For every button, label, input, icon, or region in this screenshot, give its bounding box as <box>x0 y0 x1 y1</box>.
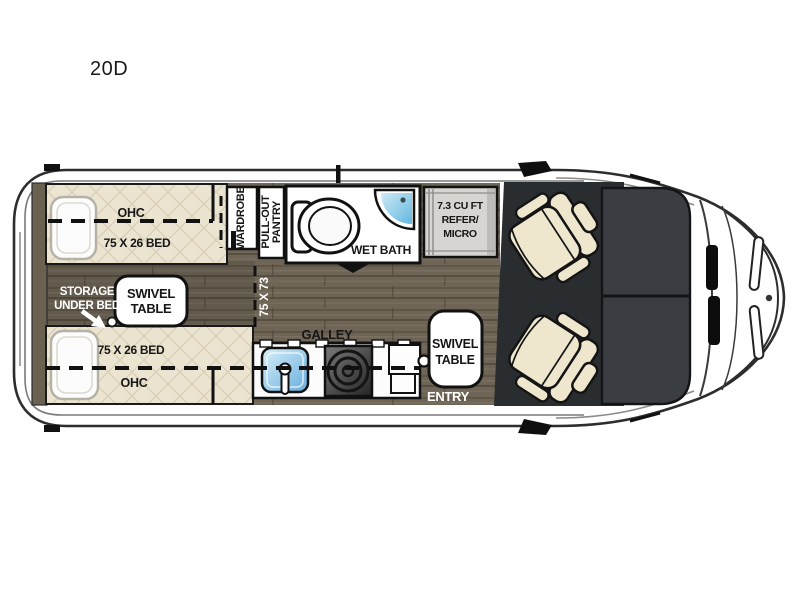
label-galley: GALLEY <box>302 327 354 342</box>
grille-bar-lower <box>708 296 720 345</box>
stove-icon <box>325 346 372 396</box>
bed-top <box>46 184 227 264</box>
grille-bar-upper <box>706 245 718 290</box>
rear-cabinet <box>32 183 47 405</box>
label-swivel-front-line2: TABLE <box>435 353 474 367</box>
counter-end-lower <box>391 374 415 393</box>
door-hinge-bottom <box>44 425 60 432</box>
label-pantry-line2: PANTRY <box>271 200 283 243</box>
label-wardrobe: WARDROBE <box>235 187 247 250</box>
sink-icon <box>262 348 308 394</box>
label-swivel-front-line1: SWIVEL <box>432 337 479 351</box>
label-refer-line3: MICRO <box>443 228 477 240</box>
wet-bath <box>286 186 420 273</box>
wall-tick <box>336 165 341 183</box>
label-wet-bath: WET BATH <box>351 243 411 257</box>
label-bed-top-size: 75 X 26 BED <box>104 236 171 250</box>
label-ohc-bottom: OHC <box>121 376 148 390</box>
bumper-emblem <box>766 295 772 301</box>
toilet-icon <box>292 199 359 253</box>
label-swivel-rear-line2: TABLE <box>131 301 172 316</box>
label-storage-line2: UNDER BED <box>54 300 120 312</box>
floorplan-svg: OHC 75 X 26 BED STORAGE UNDER BED SWIVEL… <box>0 0 800 600</box>
label-storage-line1: STORAGE <box>60 286 115 298</box>
storage-point-dot <box>108 318 117 327</box>
bed-bottom <box>46 326 253 404</box>
floorplan-page: 20D <box>0 0 800 600</box>
label-bed-bottom-size: 75 X 26 BED <box>98 343 165 357</box>
label-refer-line2: REFER/ <box>442 214 479 226</box>
label-dimension: 75 X 73 <box>257 277 271 317</box>
model-title: 20D <box>90 58 128 81</box>
door-hinge-top <box>44 164 60 171</box>
label-refer-line1: 7.3 CU FT <box>437 200 484 212</box>
label-entry: ENTRY <box>427 389 470 404</box>
label-ohc-top: OHC <box>118 206 145 220</box>
label-swivel-rear-line1: SWIVEL <box>127 286 175 301</box>
